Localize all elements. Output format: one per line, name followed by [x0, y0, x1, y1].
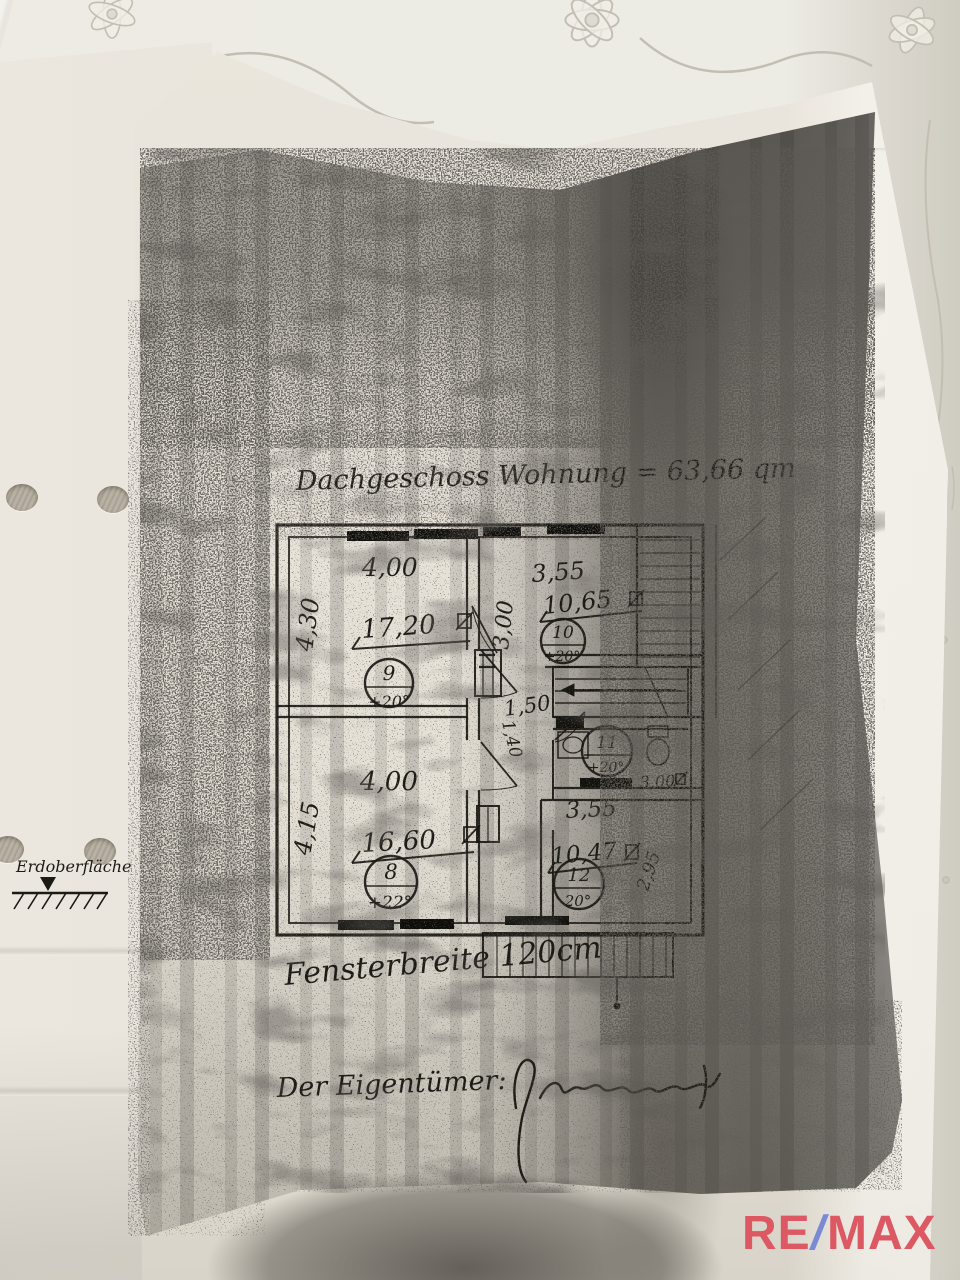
- remax-logo-re: RE: [742, 1207, 811, 1260]
- remax-logo: RE/MAX: [742, 1210, 937, 1258]
- remax-logo-max: MAX: [827, 1207, 937, 1260]
- photo-vignette: [0, 0, 960, 1280]
- photographed-floorplan-document: Dachgeschoss Wohnung = 63,66 qm 4,00 4,3…: [0, 0, 960, 1280]
